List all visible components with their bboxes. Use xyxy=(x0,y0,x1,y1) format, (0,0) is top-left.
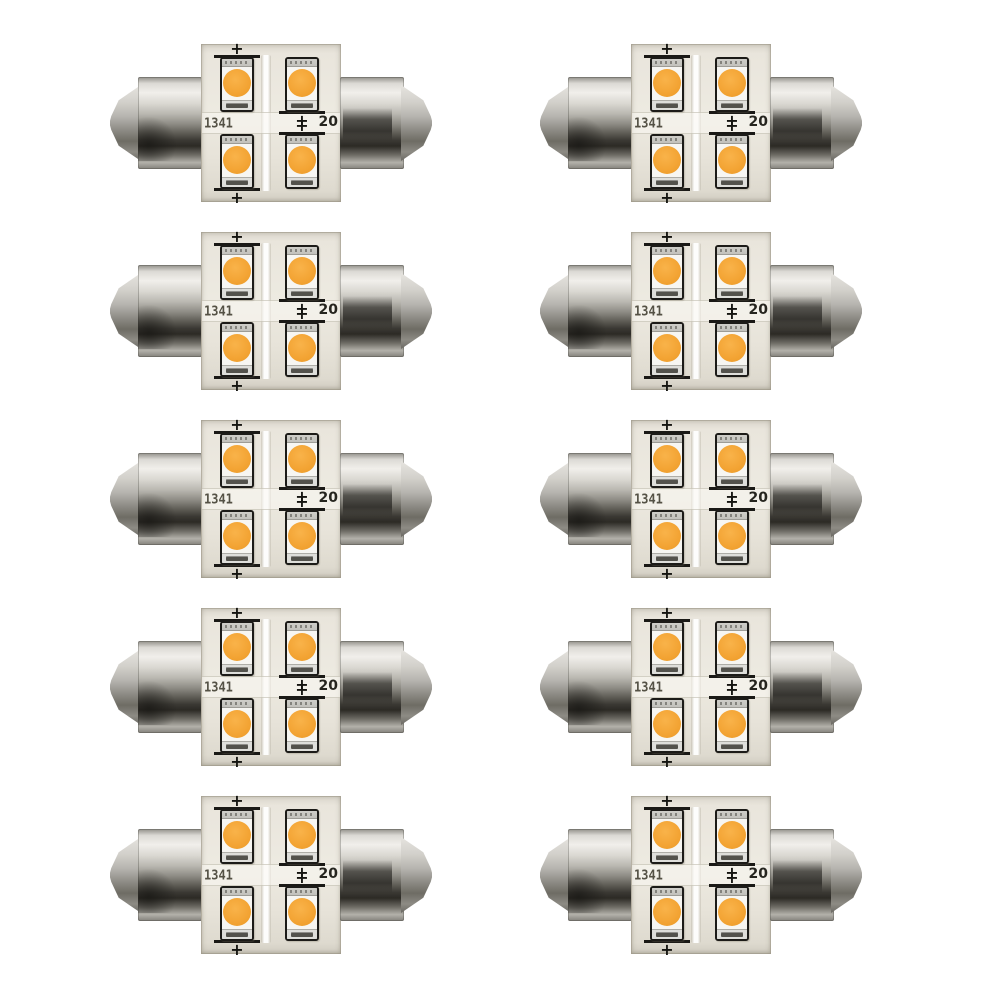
festoon-led-bulb-r2-c2: 1341 20 + + xyxy=(540,232,862,390)
pcb-datecode-text: 1341 xyxy=(204,679,233,695)
led-top-contact xyxy=(222,700,252,708)
led-top-contact xyxy=(717,435,747,443)
led-amber-dome xyxy=(653,146,681,174)
pcb-right-marking-text: 20 xyxy=(749,678,768,694)
led-solder-pad xyxy=(291,855,313,860)
led-top-contact xyxy=(652,59,682,67)
led-bottom-contact xyxy=(222,177,252,187)
led-bottom-contact xyxy=(717,553,747,563)
led-top-contact xyxy=(652,247,682,255)
led-bottom-contact xyxy=(652,288,682,298)
polarity-plus-mark: + xyxy=(725,119,738,132)
pcb-right-marking-text: 20 xyxy=(319,678,338,694)
led-top-left: + xyxy=(650,433,684,488)
led-solder-pad xyxy=(656,103,678,108)
led-package xyxy=(285,245,319,300)
led-bottom-contact xyxy=(222,852,252,862)
led-solder-pad xyxy=(226,180,248,185)
led-bottom-right: + xyxy=(285,698,319,753)
led-package xyxy=(650,433,684,488)
led-amber-dome xyxy=(223,898,251,926)
led-amber-dome xyxy=(718,522,746,550)
led-package xyxy=(650,886,684,941)
led-top-contact xyxy=(652,136,682,144)
led-package xyxy=(650,510,684,565)
polarity-plus-mark: + xyxy=(660,794,673,807)
pcb-board: 1341 20 + + xyxy=(201,232,341,390)
led-bottom-contact xyxy=(287,553,317,563)
polarity-plus-mark: + xyxy=(660,567,673,580)
led-top-left: + xyxy=(650,245,684,300)
pcb-right-marking-text: 20 xyxy=(319,866,338,882)
left-end-cap-cylinder xyxy=(568,641,632,733)
led-solder-pad xyxy=(226,291,248,296)
polarity-plus-mark: + xyxy=(230,794,243,807)
led-top-contact xyxy=(222,59,252,67)
led-top-contact xyxy=(717,811,747,819)
left-end-cap-tip xyxy=(110,649,141,725)
led-bottom-contact xyxy=(652,929,682,939)
led-amber-dome xyxy=(288,146,316,174)
led-amber-dome xyxy=(653,334,681,362)
right-end-cap-tip xyxy=(401,85,432,161)
pcb-board: 1341 20 + + xyxy=(201,420,341,578)
led-amber-dome xyxy=(288,334,316,362)
pcb-board: 1341 20 + + xyxy=(631,608,771,766)
led-package xyxy=(285,809,319,864)
led-solder-pad xyxy=(226,368,248,373)
led-top-left: + xyxy=(650,57,684,112)
led-top-contact xyxy=(717,512,747,520)
pcb-board: 1341 20 + + xyxy=(201,44,341,202)
led-amber-dome xyxy=(718,710,746,738)
right-end-cap-cylinder xyxy=(770,829,834,921)
led-bottom-contact xyxy=(287,852,317,862)
led-solder-pad xyxy=(656,932,678,937)
right-end-cap-cylinder xyxy=(340,453,404,545)
festoon-led-bulb-r4-c2: 1341 20 + + xyxy=(540,608,862,766)
led-package xyxy=(650,809,684,864)
festoon-led-bulb-r4-c1: 1341 20 + + xyxy=(110,608,432,766)
led-package xyxy=(650,698,684,753)
led-top-contact xyxy=(287,512,317,520)
led-bottom-contact xyxy=(717,177,747,187)
led-package xyxy=(220,886,254,941)
led-package xyxy=(650,245,684,300)
polarity-plus-mark: + xyxy=(295,871,308,884)
right-end-cap-cylinder xyxy=(770,77,834,169)
left-end-cap-cylinder xyxy=(138,453,202,545)
pcb-right-marking-text: 20 xyxy=(749,302,768,318)
led-amber-dome xyxy=(718,69,746,97)
led-top-contact xyxy=(222,623,252,631)
led-top-contact xyxy=(287,324,317,332)
pcb-datecode-text: 1341 xyxy=(634,491,663,507)
led-bottom-left: + xyxy=(220,698,254,753)
led-package xyxy=(715,621,749,676)
led-package xyxy=(285,57,319,112)
led-top-contact xyxy=(287,623,317,631)
led-solder-pad xyxy=(656,744,678,749)
right-end-cap-tip xyxy=(401,461,432,537)
led-bottom-left: + xyxy=(650,322,684,377)
led-bottom-left: + xyxy=(650,134,684,189)
led-bottom-contact xyxy=(717,288,747,298)
right-end-cap-tip xyxy=(401,273,432,349)
pcb-right-marking-text: 20 xyxy=(749,490,768,506)
festoon-led-bulb-r3-c2: 1341 20 + + xyxy=(540,420,862,578)
led-amber-dome xyxy=(223,146,251,174)
led-bottom-right: + xyxy=(715,698,749,753)
polarity-plus-mark: + xyxy=(295,307,308,320)
led-top-right: + xyxy=(715,433,749,488)
led-bottom-contact xyxy=(652,852,682,862)
led-package xyxy=(285,322,319,377)
led-solder-pad xyxy=(656,855,678,860)
pcb-board: 1341 20 + + xyxy=(201,796,341,954)
led-amber-dome xyxy=(288,898,316,926)
led-package xyxy=(715,57,749,112)
led-bottom-contact xyxy=(287,365,317,375)
led-top-contact xyxy=(717,247,747,255)
led-solder-pad xyxy=(226,932,248,937)
led-amber-dome xyxy=(288,522,316,550)
led-solder-pad xyxy=(291,103,313,108)
pcb-right-marking-text: 20 xyxy=(749,114,768,130)
led-top-contact xyxy=(717,700,747,708)
right-end-cap-cylinder xyxy=(770,265,834,357)
led-top-contact xyxy=(652,700,682,708)
led-bottom-contact xyxy=(222,929,252,939)
led-amber-dome xyxy=(653,522,681,550)
led-bottom-right: + xyxy=(715,134,749,189)
led-top-contact xyxy=(222,136,252,144)
polarity-plus-mark: + xyxy=(725,871,738,884)
left-end-cap-cylinder xyxy=(568,77,632,169)
led-top-right: + xyxy=(285,57,319,112)
right-end-cap-tip xyxy=(831,85,862,161)
led-top-contact xyxy=(717,888,747,896)
led-bottom-left: + xyxy=(220,886,254,941)
polarity-plus-mark: + xyxy=(660,943,673,956)
led-bottom-right: + xyxy=(285,886,319,941)
polarity-plus-mark: + xyxy=(660,42,673,55)
led-top-right: + xyxy=(285,621,319,676)
festoon-led-bulb-r1-c2: 1341 20 + + xyxy=(540,44,862,202)
polarity-plus-mark: + xyxy=(660,606,673,619)
polarity-plus-mark: + xyxy=(660,418,673,431)
left-end-cap-tip xyxy=(540,649,571,725)
led-solder-pad xyxy=(656,291,678,296)
led-bottom-contact xyxy=(717,365,747,375)
led-bottom-contact xyxy=(717,852,747,862)
led-top-right: + xyxy=(715,245,749,300)
led-top-contact xyxy=(222,811,252,819)
led-amber-dome xyxy=(653,898,681,926)
right-end-cap-cylinder xyxy=(340,641,404,733)
led-solder-pad xyxy=(721,556,743,561)
led-bottom-contact xyxy=(717,100,747,110)
led-package xyxy=(220,621,254,676)
led-solder-pad xyxy=(721,744,743,749)
led-solder-pad xyxy=(721,932,743,937)
led-amber-dome xyxy=(288,445,316,473)
festoon-led-bulb-r1-c1: 1341 20 + + xyxy=(110,44,432,202)
polarity-plus-mark: + xyxy=(660,379,673,392)
led-solder-pad xyxy=(656,667,678,672)
polarity-plus-mark: + xyxy=(230,42,243,55)
led-top-left: + xyxy=(220,245,254,300)
led-bottom-contact xyxy=(222,288,252,298)
led-amber-dome xyxy=(718,821,746,849)
pcb-board: 1341 20 + + xyxy=(631,232,771,390)
led-solder-pad xyxy=(291,744,313,749)
led-top-contact xyxy=(717,623,747,631)
left-end-cap-tip xyxy=(110,461,141,537)
led-package xyxy=(220,809,254,864)
festoon-led-bulb-r3-c1: 1341 20 + + xyxy=(110,420,432,578)
polarity-plus-mark: + xyxy=(660,191,673,204)
led-top-right: + xyxy=(715,57,749,112)
led-top-contact xyxy=(222,247,252,255)
led-top-left: + xyxy=(220,621,254,676)
left-end-cap-tip xyxy=(540,837,571,913)
led-amber-dome xyxy=(718,146,746,174)
led-bottom-contact xyxy=(652,177,682,187)
led-bottom-contact xyxy=(652,741,682,751)
led-bottom-contact xyxy=(222,553,252,563)
led-package xyxy=(650,621,684,676)
led-bottom-left: + xyxy=(220,134,254,189)
led-solder-pad xyxy=(656,180,678,185)
led-bottom-contact xyxy=(652,553,682,563)
led-solder-pad xyxy=(721,667,743,672)
left-end-cap-cylinder xyxy=(568,265,632,357)
led-package xyxy=(220,134,254,189)
left-end-cap-tip xyxy=(540,85,571,161)
led-bottom-contact xyxy=(222,476,252,486)
led-amber-dome xyxy=(223,522,251,550)
led-top-contact xyxy=(287,700,317,708)
pcb-datecode-text: 1341 xyxy=(204,303,233,319)
led-bottom-right: + xyxy=(715,510,749,565)
led-amber-dome xyxy=(653,445,681,473)
pcb-board: 1341 20 + + xyxy=(201,608,341,766)
polarity-plus-mark: + xyxy=(725,307,738,320)
led-bottom-contact xyxy=(287,929,317,939)
led-solder-pad xyxy=(291,932,313,937)
led-top-contact xyxy=(717,59,747,67)
led-amber-dome xyxy=(223,334,251,362)
led-amber-dome xyxy=(288,633,316,661)
led-package xyxy=(715,698,749,753)
polarity-plus-mark: + xyxy=(660,755,673,768)
led-amber-dome xyxy=(653,710,681,738)
led-bottom-contact xyxy=(717,664,747,674)
polarity-plus-mark: + xyxy=(295,495,308,508)
led-top-contact xyxy=(287,811,317,819)
led-solder-pad xyxy=(291,291,313,296)
led-bottom-contact xyxy=(222,100,252,110)
led-amber-dome xyxy=(718,257,746,285)
led-amber-dome xyxy=(718,633,746,661)
festoon-led-bulb-r5-c1: 1341 20 + + xyxy=(110,796,432,954)
led-bottom-right: + xyxy=(715,322,749,377)
led-bottom-contact xyxy=(287,177,317,187)
polarity-plus-mark: + xyxy=(295,683,308,696)
led-package xyxy=(285,433,319,488)
pcb-datecode-text: 1341 xyxy=(634,303,663,319)
led-bottom-left: + xyxy=(220,322,254,377)
led-solder-pad xyxy=(291,556,313,561)
led-solder-pad xyxy=(656,556,678,561)
led-top-contact xyxy=(287,59,317,67)
led-solder-pad xyxy=(721,479,743,484)
led-amber-dome xyxy=(288,69,316,97)
led-package xyxy=(285,134,319,189)
pcb-board: 1341 20 + + xyxy=(631,796,771,954)
led-amber-dome xyxy=(718,898,746,926)
led-top-right: + xyxy=(715,809,749,864)
led-solder-pad xyxy=(721,180,743,185)
pcb-right-marking-text: 20 xyxy=(319,490,338,506)
led-solder-pad xyxy=(291,180,313,185)
left-end-cap-cylinder xyxy=(138,77,202,169)
led-top-right: + xyxy=(285,809,319,864)
polarity-plus-mark: + xyxy=(230,567,243,580)
led-amber-dome xyxy=(718,334,746,362)
led-package xyxy=(220,245,254,300)
led-bottom-contact xyxy=(222,741,252,751)
led-bottom-contact xyxy=(652,476,682,486)
pcb-right-marking-text: 20 xyxy=(749,866,768,882)
pcb-datecode-text: 1341 xyxy=(204,491,233,507)
right-end-cap-cylinder xyxy=(340,77,404,169)
led-bottom-contact xyxy=(287,664,317,674)
led-package xyxy=(285,621,319,676)
right-end-cap-tip xyxy=(831,461,862,537)
led-top-right: + xyxy=(285,245,319,300)
polarity-plus-mark: + xyxy=(295,119,308,132)
left-end-cap-tip xyxy=(540,273,571,349)
led-top-contact xyxy=(652,811,682,819)
led-top-contact xyxy=(287,247,317,255)
led-solder-pad xyxy=(226,667,248,672)
led-top-contact xyxy=(222,512,252,520)
right-end-cap-tip xyxy=(831,837,862,913)
right-end-cap-tip xyxy=(831,649,862,725)
right-end-cap-tip xyxy=(401,649,432,725)
polarity-plus-mark: + xyxy=(660,230,673,243)
left-end-cap-cylinder xyxy=(138,829,202,921)
led-solder-pad xyxy=(291,667,313,672)
led-top-contact xyxy=(287,888,317,896)
led-top-contact xyxy=(222,435,252,443)
polarity-plus-mark: + xyxy=(230,191,243,204)
pcb-datecode-text: 1341 xyxy=(204,115,233,131)
pcb-board: 1341 20 + + xyxy=(631,420,771,578)
led-top-contact xyxy=(717,136,747,144)
led-bottom-left: + xyxy=(220,510,254,565)
led-bottom-contact xyxy=(652,664,682,674)
led-package xyxy=(715,245,749,300)
led-bottom-right: + xyxy=(285,510,319,565)
led-package xyxy=(715,134,749,189)
led-amber-dome xyxy=(718,445,746,473)
led-amber-dome xyxy=(223,69,251,97)
led-package xyxy=(650,322,684,377)
led-top-contact xyxy=(652,435,682,443)
left-end-cap-tip xyxy=(540,461,571,537)
left-end-cap-cylinder xyxy=(138,265,202,357)
led-bottom-left: + xyxy=(650,510,684,565)
festoon-led-bulb-r5-c2: 1341 20 + + xyxy=(540,796,862,954)
polarity-plus-mark: + xyxy=(230,418,243,431)
led-solder-pad xyxy=(721,103,743,108)
led-amber-dome xyxy=(653,633,681,661)
led-package xyxy=(285,510,319,565)
led-solder-pad xyxy=(291,368,313,373)
led-solder-pad xyxy=(656,479,678,484)
led-top-left: + xyxy=(220,433,254,488)
led-top-right: + xyxy=(285,433,319,488)
led-bottom-right: + xyxy=(715,886,749,941)
led-bottom-contact xyxy=(287,741,317,751)
led-bottom-left: + xyxy=(650,886,684,941)
right-end-cap-tip xyxy=(831,273,862,349)
polarity-plus-mark: + xyxy=(230,230,243,243)
led-solder-pad xyxy=(226,103,248,108)
led-package xyxy=(650,134,684,189)
led-bottom-contact xyxy=(222,664,252,674)
led-package xyxy=(715,886,749,941)
polarity-plus-mark: + xyxy=(230,379,243,392)
led-amber-dome xyxy=(288,710,316,738)
led-amber-dome xyxy=(288,257,316,285)
led-bottom-contact xyxy=(287,288,317,298)
led-package xyxy=(285,698,319,753)
right-end-cap-cylinder xyxy=(340,829,404,921)
led-solder-pad xyxy=(721,368,743,373)
polarity-plus-mark: + xyxy=(230,755,243,768)
left-end-cap-cylinder xyxy=(568,453,632,545)
led-top-contact xyxy=(222,324,252,332)
led-package xyxy=(220,698,254,753)
pcb-board: 1341 20 + + xyxy=(631,44,771,202)
led-top-right: + xyxy=(715,621,749,676)
led-package xyxy=(220,322,254,377)
led-bottom-contact xyxy=(652,100,682,110)
led-solder-pad xyxy=(291,479,313,484)
led-amber-dome xyxy=(223,257,251,285)
led-amber-dome xyxy=(653,821,681,849)
pcb-datecode-text: 1341 xyxy=(204,867,233,883)
right-end-cap-cylinder xyxy=(770,641,834,733)
led-solder-pad xyxy=(721,855,743,860)
led-amber-dome xyxy=(223,633,251,661)
led-package xyxy=(650,57,684,112)
festoon-led-bulb-r2-c1: 1341 20 + + xyxy=(110,232,432,390)
led-bottom-contact xyxy=(222,365,252,375)
polarity-plus-mark: + xyxy=(725,495,738,508)
left-end-cap-tip xyxy=(110,85,141,161)
polarity-plus-mark: + xyxy=(230,606,243,619)
pcb-datecode-text: 1341 xyxy=(634,115,663,131)
led-package xyxy=(715,322,749,377)
led-bottom-contact xyxy=(287,100,317,110)
led-top-contact xyxy=(287,136,317,144)
led-bottom-right: + xyxy=(285,134,319,189)
